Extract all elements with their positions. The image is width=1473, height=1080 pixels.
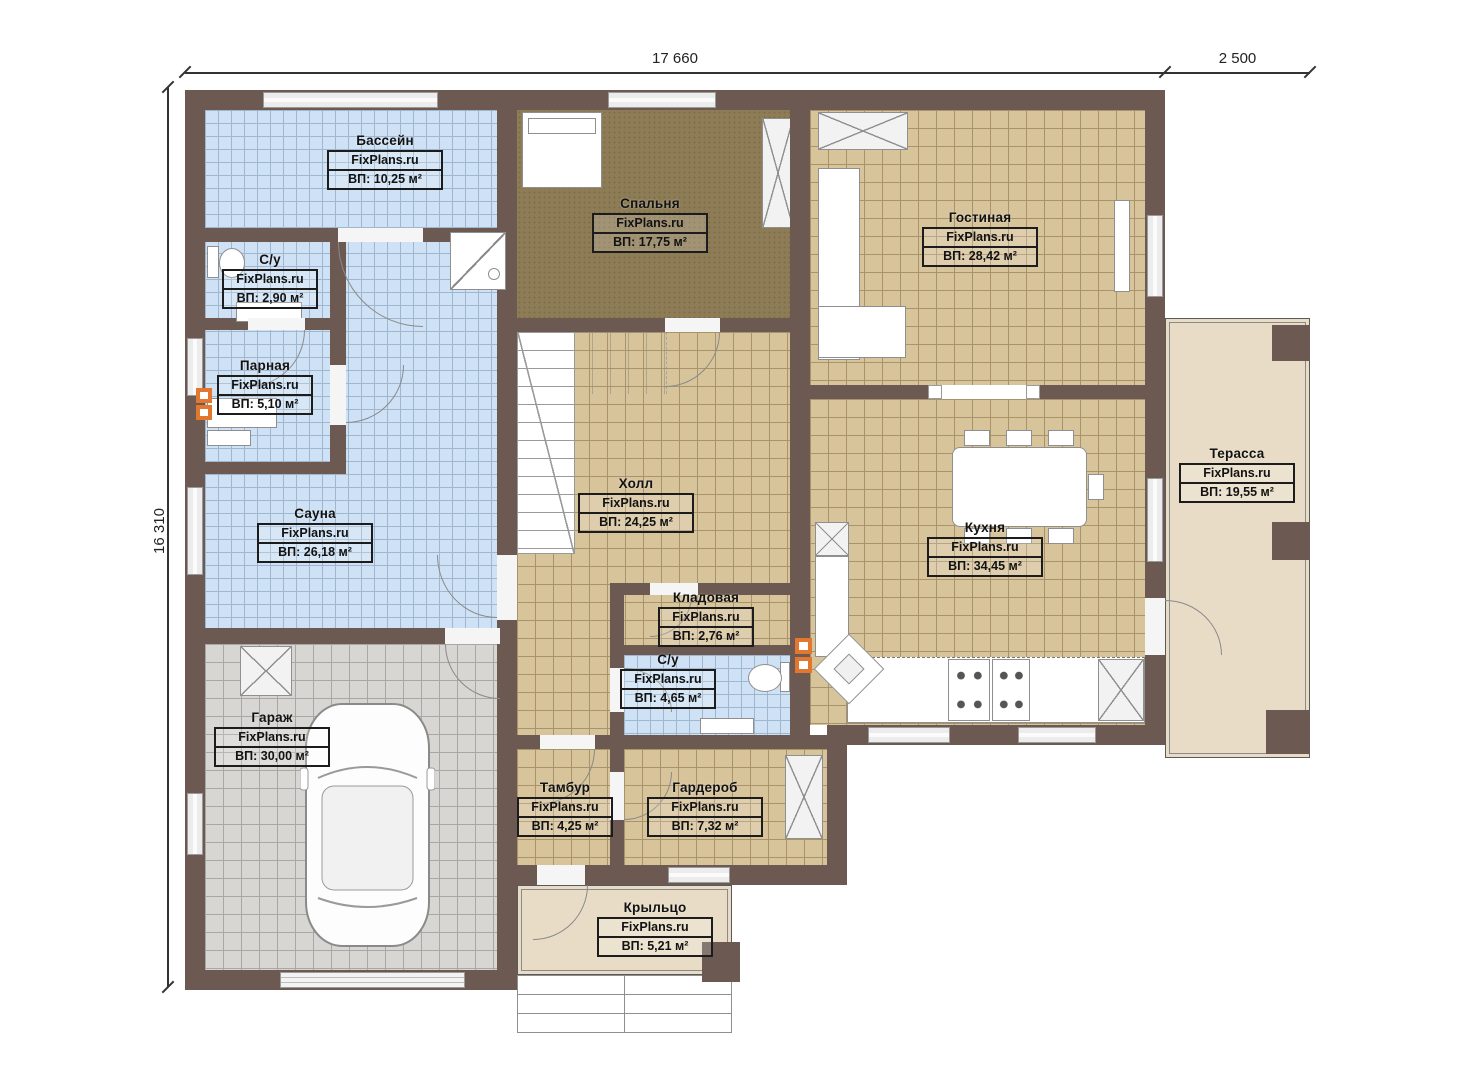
room-label-living: Гостиная FixPlans.ru ВП: 28,42 м²: [922, 210, 1038, 267]
wall-step-vertical: [827, 725, 847, 885]
toilet-bowl: [748, 664, 782, 692]
utility-marker: [196, 405, 212, 420]
window: [608, 92, 716, 108]
door-opening: [497, 555, 517, 620]
utility-marker: [795, 657, 812, 673]
area-box: ВП: 7,32 м²: [647, 818, 763, 837]
staircase-upper-dashed: [575, 332, 667, 394]
area-box: ВП: 26,18 м²: [257, 544, 373, 563]
area-box: ВП: 17,75 м²: [592, 234, 708, 253]
room-name: Гостиная: [922, 210, 1038, 225]
room-name: С/у: [222, 252, 318, 267]
area-box: ВП: 5,21 м²: [597, 938, 713, 957]
room-label-hall: Холл FixPlans.ru ВП: 24,25 м²: [578, 476, 694, 533]
area-box: ВП: 2,90 м²: [222, 290, 318, 309]
dimension-label-width-main: 17 660: [185, 50, 1165, 67]
column: [1026, 385, 1040, 399]
toilet-tank: [207, 246, 219, 278]
garage-door: [280, 972, 465, 988]
brand-box: FixPlans.ru: [647, 797, 763, 818]
brand-box: FixPlans.ru: [257, 523, 373, 544]
room-label-garage: Гараж FixPlans.ru ВП: 30,00 м²: [214, 710, 330, 767]
wardrobe-cabinet: [785, 755, 823, 839]
brand-box: FixPlans.ru: [1179, 463, 1295, 484]
room-label-tambour: Тамбур FixPlans.ru ВП: 4,25 м²: [517, 780, 613, 837]
window: [187, 487, 203, 575]
brand-box: FixPlans.ru: [597, 917, 713, 938]
room-name: Парная: [217, 358, 313, 373]
room-name: Бассейн: [327, 133, 443, 148]
door-opening: [248, 318, 305, 330]
door-opening: [1145, 598, 1165, 655]
brand-box: FixPlans.ru: [927, 537, 1043, 558]
wall-living-kitchen-left: [810, 385, 930, 399]
shower-head: [488, 268, 500, 280]
window: [1147, 215, 1163, 297]
room-label-bathroom1: С/у FixPlans.ru ВП: 2,90 м²: [222, 252, 318, 309]
door-opening: [665, 318, 720, 332]
utility-marker: [795, 638, 812, 654]
area-box: ВП: 5,10 м²: [217, 396, 313, 415]
utility-marker: [196, 388, 212, 403]
chair: [1088, 474, 1104, 500]
room-name: Терасса: [1179, 446, 1295, 461]
room-label-sauna: Сауна FixPlans.ru ВП: 26,18 м²: [257, 506, 373, 563]
room-label-porch: Крыльцо FixPlans.ru ВП: 5,21 м²: [597, 900, 713, 957]
area-box: ВП: 24,25 м²: [578, 514, 694, 533]
brand-box: FixPlans.ru: [922, 227, 1038, 248]
terrace-post: [1272, 522, 1310, 560]
area-box: ВП: 28,42 м²: [922, 248, 1038, 267]
door-opening: [445, 628, 500, 644]
stove: [948, 659, 990, 721]
brand-box: FixPlans.ru: [620, 669, 716, 690]
floor-plan: Бассейн FixPlans.ru ВП: 10,25 м² С/у Fix…: [0, 0, 1473, 1080]
washbasin: [700, 718, 754, 734]
wall-parnaya-bottom: [205, 462, 346, 474]
area-box: ВП: 19,55 м²: [1179, 484, 1295, 503]
window: [1147, 478, 1163, 562]
tv-stand: [1114, 200, 1130, 292]
room-label-pool: Бассейн FixPlans.ru ВП: 10,25 м²: [327, 133, 443, 190]
chair: [1006, 430, 1032, 446]
room-label-wardrobe: Гардероб FixPlans.ru ВП: 7,32 м²: [647, 780, 763, 837]
room-label-bathroom2: С/у FixPlans.ru ВП: 4,65 м²: [620, 652, 716, 709]
room-label-steam: Парная FixPlans.ru ВП: 5,10 м²: [217, 358, 313, 415]
room-name: Кухня: [927, 520, 1043, 535]
area-box: ВП: 10,25 м²: [327, 171, 443, 190]
window: [668, 867, 730, 883]
bed-pillow: [528, 118, 596, 134]
window: [1018, 727, 1096, 743]
wall-divider-left: [497, 90, 517, 990]
garage-hatch: [240, 646, 292, 696]
dimension-label-width-terrace: 2 500: [1165, 50, 1310, 67]
staircase: [517, 332, 575, 554]
shower: [450, 232, 506, 290]
area-box: ВП: 2,76 м²: [658, 628, 754, 647]
door-opening: [338, 228, 423, 242]
sauna-stove: [207, 430, 251, 446]
terrace-post: [1266, 710, 1310, 754]
dimension-line-top-terrace: [1165, 72, 1310, 74]
brand-box: FixPlans.ru: [327, 150, 443, 171]
dimension-line-top-main: [185, 72, 1165, 74]
dining-table: [952, 447, 1087, 527]
sofa-chaise: [818, 306, 906, 358]
room-label-storage: Кладовая FixPlans.ru ВП: 2,76 м²: [658, 590, 754, 647]
brand-box: FixPlans.ru: [214, 727, 330, 748]
area-box: ВП: 4,25 м²: [517, 818, 613, 837]
wall-bedroom-hall: [517, 318, 790, 332]
window: [187, 793, 203, 855]
room-name: Тамбур: [517, 780, 613, 795]
area-box: ВП: 30,00 м²: [214, 748, 330, 767]
room-name: Кладовая: [658, 590, 754, 605]
door-opening: [537, 865, 585, 885]
porch-steps: [517, 975, 732, 1033]
area-box: ВП: 34,45 м²: [927, 558, 1043, 577]
room-label-terrace: Терасса FixPlans.ru ВП: 19,55 м²: [1179, 446, 1295, 503]
door-opening: [540, 735, 595, 749]
area-box: ВП: 4,65 м²: [620, 690, 716, 709]
dimension-label-height: 16 310: [151, 481, 169, 581]
room-name: Холл: [578, 476, 694, 491]
chair: [964, 430, 990, 446]
terrace-post: [1272, 325, 1310, 361]
oven: [992, 659, 1030, 721]
room-name: Сауна: [257, 506, 373, 521]
brand-box: FixPlans.ru: [658, 607, 754, 628]
chair: [1048, 430, 1074, 446]
column: [928, 385, 942, 399]
chair: [1048, 528, 1074, 544]
room-label-bedroom: Спальня FixPlans.ru ВП: 17,75 м²: [592, 196, 708, 253]
room-name: Гардероб: [647, 780, 763, 795]
brand-box: FixPlans.ru: [517, 797, 613, 818]
brand-box: FixPlans.ru: [222, 269, 318, 290]
window: [263, 92, 438, 108]
brand-box: FixPlans.ru: [217, 375, 313, 396]
window: [868, 727, 950, 743]
room-name: С/у: [620, 652, 716, 667]
room-name: Гараж: [214, 710, 330, 725]
dishwasher: [1098, 659, 1144, 721]
door-opening: [330, 365, 346, 425]
cabinet: [818, 112, 908, 150]
room-name: Спальня: [592, 196, 708, 211]
fridge: [815, 522, 849, 556]
brand-box: FixPlans.ru: [592, 213, 708, 234]
brand-box: FixPlans.ru: [578, 493, 694, 514]
room-name: Крыльцо: [597, 900, 713, 915]
wall-living-kitchen-right: [1040, 385, 1145, 399]
room-label-kitchen: Кухня FixPlans.ru ВП: 34,45 м²: [927, 520, 1043, 577]
